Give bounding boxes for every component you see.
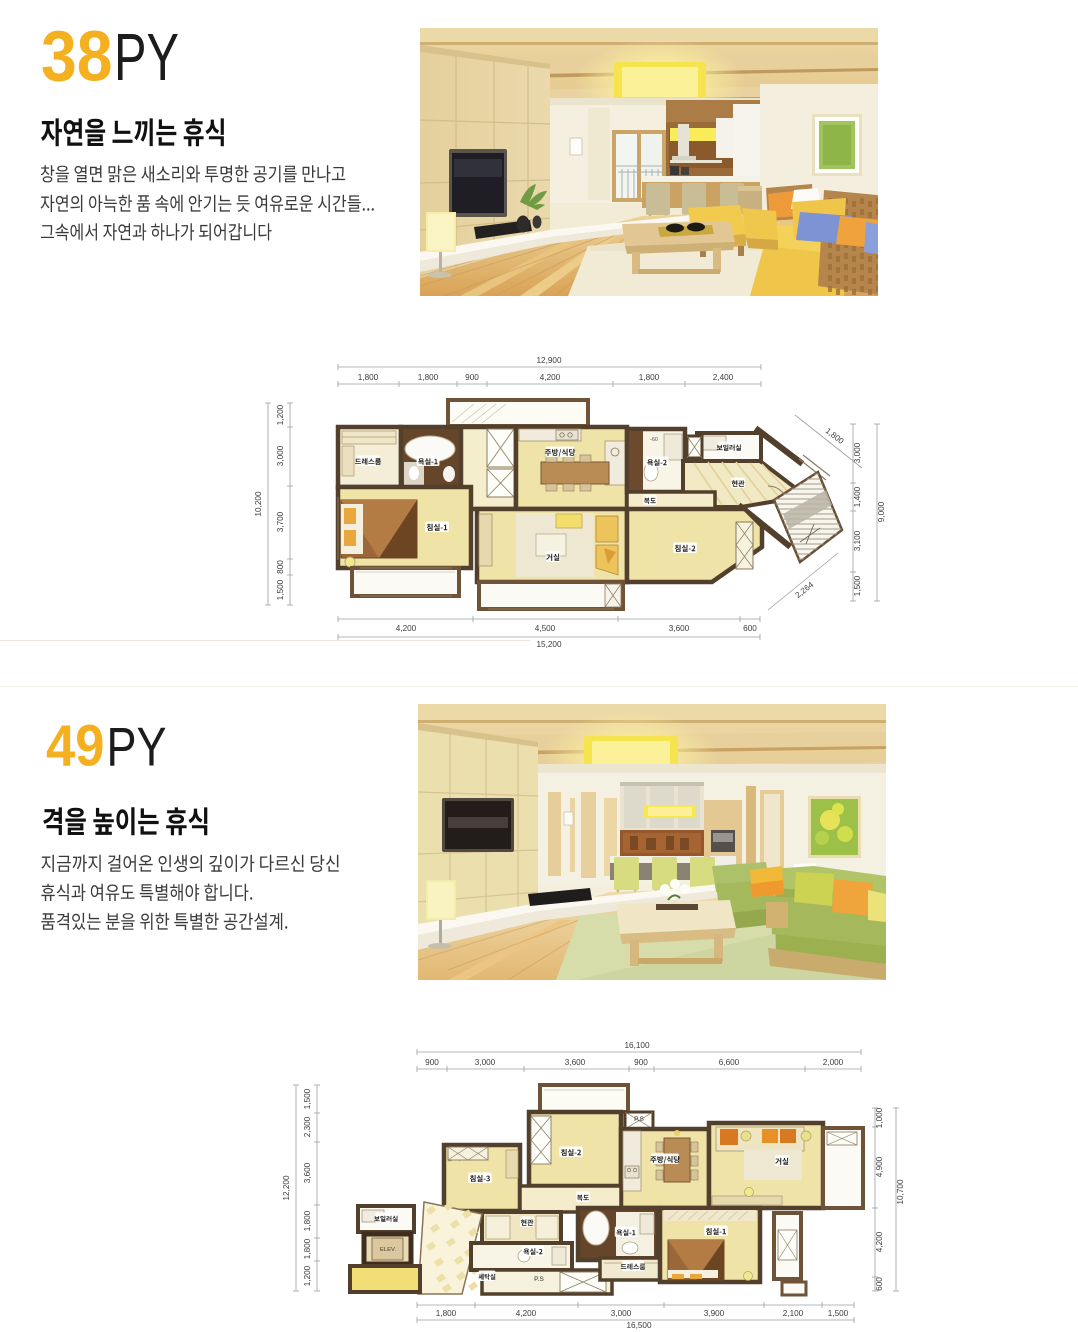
svg-text:PY: PY xyxy=(107,716,167,778)
svg-text:1,800: 1,800 xyxy=(418,373,439,382)
svg-text:-60: -60 xyxy=(650,437,658,443)
svg-text:2,000: 2,000 xyxy=(823,1058,844,1067)
svg-text:6,600: 6,600 xyxy=(719,1058,740,1067)
svg-text:9,000: 9,000 xyxy=(877,501,886,522)
svg-text:1,500: 1,500 xyxy=(828,1309,849,1318)
svg-text:15,200: 15,200 xyxy=(536,640,561,649)
svg-text:1,800: 1,800 xyxy=(639,373,660,382)
svg-text:1,800: 1,800 xyxy=(358,373,379,382)
svg-text:4,500: 4,500 xyxy=(535,624,556,633)
svg-text:2,400: 2,400 xyxy=(713,373,734,382)
svg-text:2,100: 2,100 xyxy=(783,1309,804,1318)
svg-text:1,800: 1,800 xyxy=(436,1309,457,1318)
svg-text:16,100: 16,100 xyxy=(624,1041,649,1050)
svg-text:3,600: 3,600 xyxy=(565,1058,586,1067)
svg-text:1,200: 1,200 xyxy=(276,404,285,425)
svg-text:2,300: 2,300 xyxy=(303,1116,312,1137)
svg-text:4,900: 4,900 xyxy=(875,1156,884,1177)
svg-text:3,900: 3,900 xyxy=(704,1309,725,1318)
svg-text:3,600: 3,600 xyxy=(303,1162,312,1183)
svg-text:38: 38 xyxy=(41,18,113,97)
svg-text:16,500: 16,500 xyxy=(626,1321,651,1330)
svg-text:3,000: 3,000 xyxy=(611,1309,632,1318)
svg-text:900: 900 xyxy=(634,1058,648,1067)
svg-text:1,000: 1,000 xyxy=(875,1107,884,1128)
svg-text:800: 800 xyxy=(276,560,285,574)
svg-text:1,400: 1,400 xyxy=(853,486,862,507)
svg-text:P.S: P.S xyxy=(634,1116,644,1123)
svg-text:900: 900 xyxy=(425,1058,439,1067)
svg-text:P.S: P.S xyxy=(534,1276,544,1283)
svg-text:4,200: 4,200 xyxy=(516,1309,537,1318)
svg-text:1,800: 1,800 xyxy=(824,426,846,446)
svg-text:10,700: 10,700 xyxy=(896,1179,905,1204)
svg-text:1,500: 1,500 xyxy=(303,1088,312,1109)
svg-text:12,200: 12,200 xyxy=(282,1175,291,1200)
svg-text:12,900: 12,900 xyxy=(536,356,561,365)
svg-text:1,200: 1,200 xyxy=(303,1265,312,1286)
svg-text:10,200: 10,200 xyxy=(254,491,263,516)
svg-text:ELEV.: ELEV. xyxy=(380,1247,396,1253)
svg-text:4,200: 4,200 xyxy=(540,373,561,382)
svg-text:PY: PY xyxy=(114,20,179,95)
svg-text:2,264: 2,264 xyxy=(794,580,816,600)
svg-text:3,000: 3,000 xyxy=(276,445,285,466)
svg-text:3,600: 3,600 xyxy=(669,624,690,633)
svg-text:3,000: 3,000 xyxy=(853,442,862,463)
svg-text:1,800: 1,800 xyxy=(303,1238,312,1259)
svg-text:1,800: 1,800 xyxy=(303,1210,312,1231)
svg-text:1,500: 1,500 xyxy=(853,575,862,596)
svg-text:4,200: 4,200 xyxy=(875,1231,884,1252)
svg-text:900: 900 xyxy=(465,373,479,382)
svg-text:3,100: 3,100 xyxy=(853,530,862,551)
svg-text:600: 600 xyxy=(875,1277,884,1291)
svg-text:600: 600 xyxy=(743,624,757,633)
svg-text:3,000: 3,000 xyxy=(475,1058,496,1067)
svg-text:1,500: 1,500 xyxy=(276,579,285,600)
svg-text:49: 49 xyxy=(46,714,105,779)
svg-text:3,700: 3,700 xyxy=(276,511,285,532)
svg-text:4,200: 4,200 xyxy=(396,624,417,633)
